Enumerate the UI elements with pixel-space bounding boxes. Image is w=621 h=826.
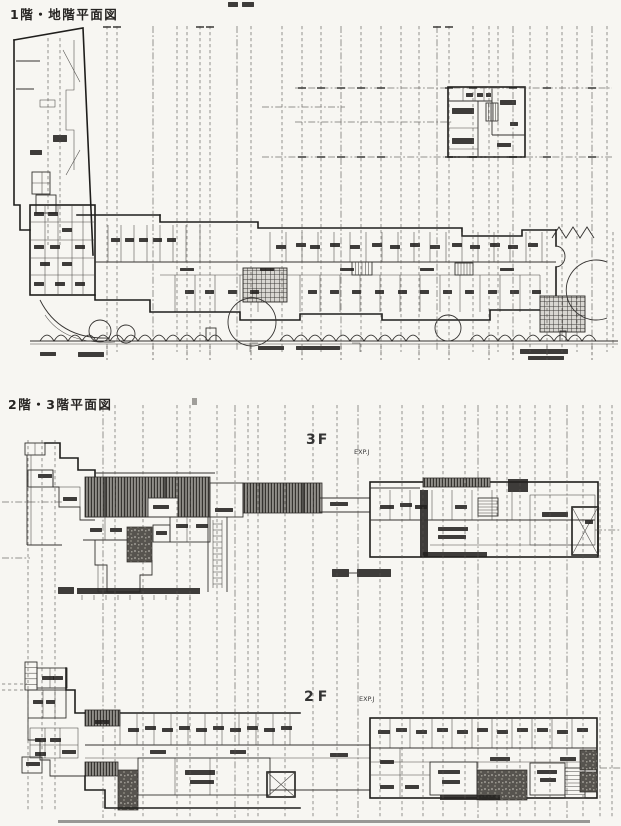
floor-plan-1f (30, 205, 607, 343)
grid-lines-upper (48, 26, 613, 352)
floor-plan-3f (25, 443, 598, 600)
scan-edge-artifact (58, 820, 590, 823)
section-title-2f-3f: 2階・3階平面図 (8, 394, 112, 413)
scanned-floor-plan-page: 1階・地階平面図 2階・3階平面図 3F 2F EXP.J EXP.J (0, 0, 621, 826)
exp-joint-label-2f: EXP.J (359, 695, 374, 703)
basement-block-plan (448, 87, 525, 157)
floor-label-2f: 2F (304, 689, 331, 705)
grid-lines-lower (2, 405, 621, 818)
exp-joint-label-3f: EXP.J (354, 448, 369, 456)
section-title-1f-basement: 1階・地階平面図 (10, 4, 118, 23)
floor-plan-2f (22, 662, 597, 810)
site-boundary-outline (14, 2, 254, 405)
floor-label-3f: 3F (306, 432, 329, 448)
